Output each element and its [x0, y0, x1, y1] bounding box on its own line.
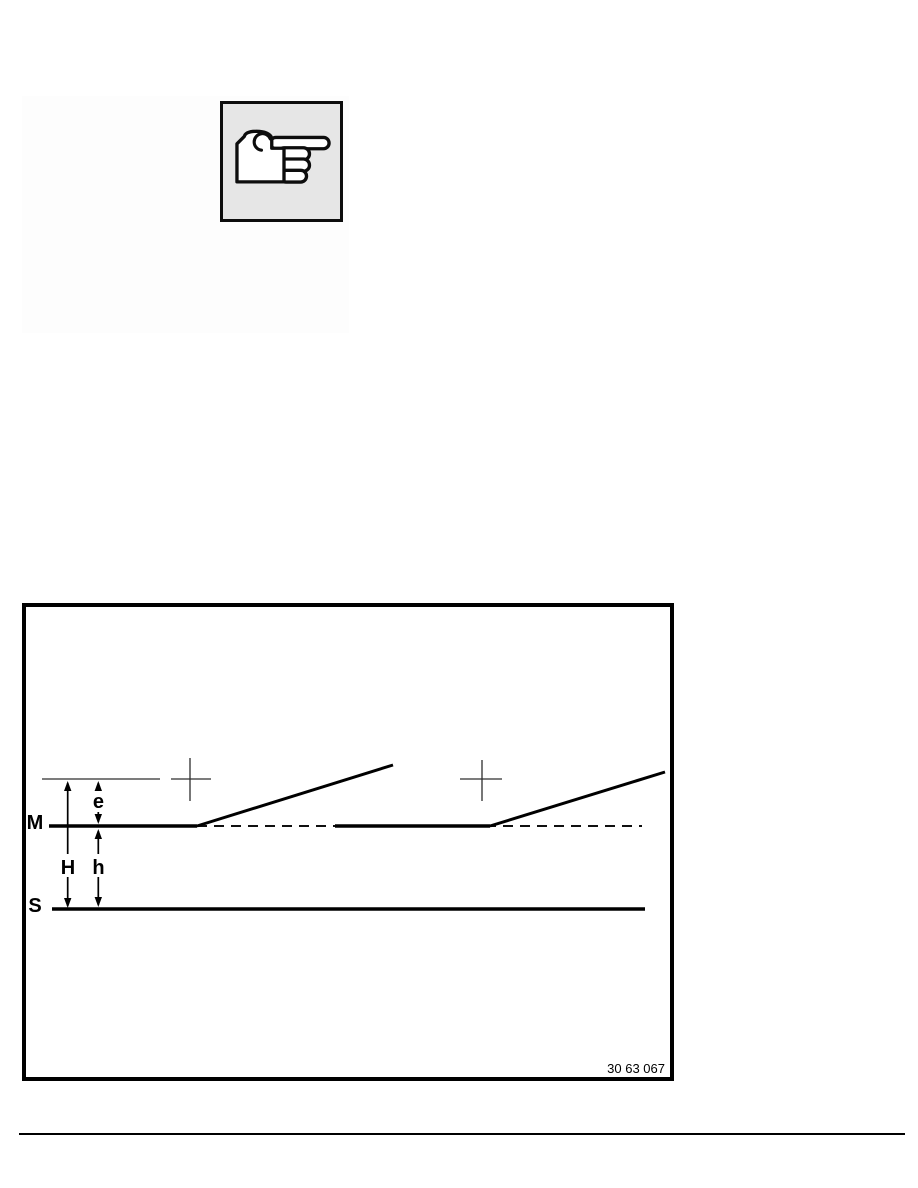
crosshair-mark-2: [460, 760, 502, 801]
crosshair-mark-1: [171, 758, 211, 801]
label-H: H: [61, 857, 75, 879]
figure-number: 30 63 067: [607, 1061, 665, 1076]
label-S: S: [28, 895, 41, 917]
technical-diagram: M S H h e 30 63 067: [26, 607, 670, 1077]
pointing-hand-icon: [235, 129, 333, 191]
manual-page: M S H h e 30 63 067: [0, 0, 918, 1188]
footer-rule: [19, 1133, 905, 1135]
dimension-arrow-H: [64, 781, 71, 908]
note-icon-box: [220, 101, 343, 222]
figure-frame: M S H h e 30 63 067: [22, 603, 674, 1081]
rising-flank-2: [490, 772, 665, 826]
label-M: M: [27, 812, 44, 834]
label-e: e: [93, 791, 104, 813]
label-h: h: [92, 857, 104, 879]
rising-flank-1: [197, 765, 393, 826]
